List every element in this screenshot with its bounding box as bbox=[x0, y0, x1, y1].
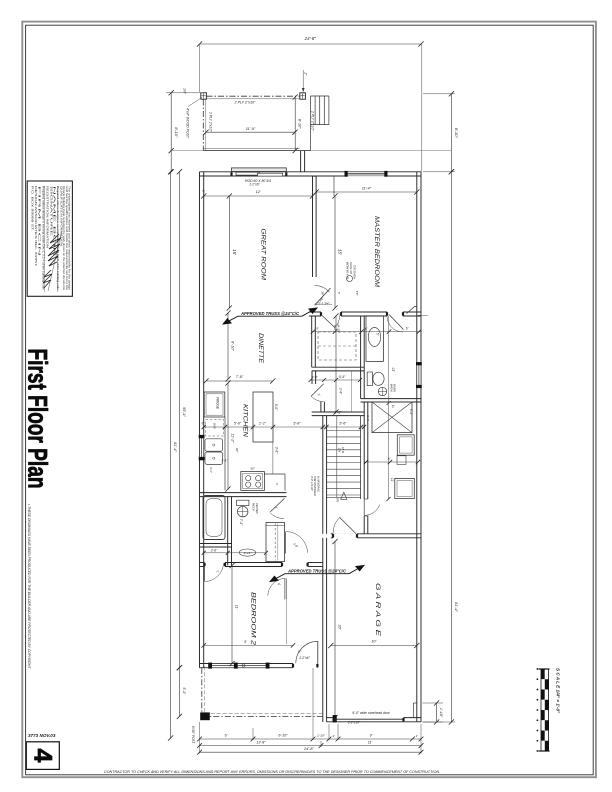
svg-text:The undersigned has reviewed a: The undersigned has reviewed and takes r… bbox=[68, 186, 71, 291]
svg-text:SLDG XO: SLDG XO bbox=[349, 262, 353, 275]
svg-text:C/W STRINGER: C/W STRINGER bbox=[313, 476, 317, 496]
svg-text:5'-6": 5'-6" bbox=[339, 422, 347, 426]
svg-text:P.O. BOX 99999 ST.: P.O. BOX 99999 ST. bbox=[31, 186, 33, 232]
svg-text:11'-4": 11'-4" bbox=[362, 186, 372, 190]
svg-text:2-2"x10": 2-2"x10" bbox=[347, 720, 361, 724]
svg-text:3'-1": 3'-1" bbox=[209, 467, 213, 474]
svg-text:3'-4": 3'-4" bbox=[338, 388, 342, 395]
svg-text:BEDROOM 2: BEDROOM 2 bbox=[250, 592, 257, 645]
svg-text:61'-4": 61'-4" bbox=[454, 602, 458, 612]
svg-text:8'-10": 8'-10" bbox=[174, 127, 179, 138]
svg-text:4: 4 bbox=[29, 749, 57, 763]
svg-text:9'-0" wide overhead door: 9'-0" wide overhead door bbox=[352, 711, 390, 715]
svg-text:24'-8": 24'-8" bbox=[304, 36, 317, 41]
svg-text:3'-0" x 6'-10": 3'-0" x 6'-10" bbox=[310, 476, 314, 492]
svg-text:2 PLY 2"x10": 2 PLY 2"x10" bbox=[311, 110, 315, 131]
svg-text:5'-6": 5'-6" bbox=[234, 422, 242, 426]
svg-text:C/R 3'HIGH: C/R 3'HIGH bbox=[353, 265, 357, 279]
svg-text:FRIDGE: FRIDGE bbox=[216, 397, 220, 410]
svg-text:1'-10": 1'-10" bbox=[439, 708, 443, 718]
svg-text:GREAT ROOM: GREAT ROOM bbox=[260, 229, 267, 281]
svg-text:6': 6' bbox=[406, 327, 409, 331]
svg-text:APPROVED TRUSS @24"C/C: APPROVED TRUSS @24"C/C bbox=[287, 569, 347, 574]
svg-text:VENTED: VENTED bbox=[255, 503, 259, 514]
svg-text:9': 9' bbox=[370, 734, 373, 738]
svg-text:2 PLY 2"x10": 2 PLY 2"x10" bbox=[209, 111, 213, 132]
svg-text:Required unless design is exem: Required unless design is exempt under D… bbox=[56, 186, 59, 291]
svg-text:24'-8": 24'-8" bbox=[303, 747, 314, 751]
svg-text:x8'-10": x8'-10" bbox=[337, 322, 341, 333]
svg-text:First Floor Plan: First Floor Plan bbox=[23, 349, 53, 489]
svg-text:WDW 60 X 48: WDW 60 X 48 bbox=[346, 262, 350, 280]
svg-text:CONTRACTOR TO CHECK AND VERIFY: CONTRACTOR TO CHECK AND VERIFY ALL DIMEN… bbox=[104, 770, 440, 774]
svg-text:2-2"x6": 2-2"x6" bbox=[248, 183, 260, 187]
svg-text:8'-10": 8'-10" bbox=[454, 128, 459, 139]
svg-text:• THESE DRAWINGS HAVE BEEN: • THESE DRAWINGS HAVE BEEN PRODUCED FOR … bbox=[27, 504, 31, 669]
svg-text:11': 11' bbox=[368, 740, 373, 744]
svg-text:S C A L E 1/4" = 1'-0": S C A L E 1/4" = 1'-0" bbox=[556, 668, 561, 714]
svg-text:20': 20' bbox=[337, 624, 341, 630]
svg-text:5': 5' bbox=[201, 190, 205, 193]
svg-text:Required unless design is exem: Required unless design is exempt under D… bbox=[41, 186, 44, 291]
svg-text:FIRM BCIN: FIRM BCIN bbox=[37, 186, 39, 258]
svg-text:16 R: 16 R bbox=[341, 447, 345, 454]
svg-text:11'-2": 11'-2" bbox=[230, 433, 234, 443]
svg-text:3773 NOV.03: 3773 NOV.03 bbox=[28, 733, 56, 738]
svg-text:2'-6": 2'-6" bbox=[210, 548, 218, 552]
svg-text:13': 13' bbox=[391, 367, 395, 372]
svg-text:55'-4": 55'-4" bbox=[182, 407, 186, 417]
svg-text:1'-4": 1'-4" bbox=[312, 375, 319, 379]
svg-text:10': 10' bbox=[371, 640, 376, 644]
svg-text:APPROVED TRUSS @24"C/C: APPROVED TRUSS @24"C/C bbox=[240, 311, 300, 316]
svg-text:2": 2" bbox=[304, 71, 308, 76]
svg-text:5'-1": 5'-1" bbox=[222, 459, 229, 463]
svg-text:6'/16" POST: 6'/16" POST bbox=[191, 726, 195, 745]
svg-text:3'-6": 3'-6" bbox=[274, 447, 278, 454]
svg-text:4"x4" WOOD POST: 4"x4" WOOD POST bbox=[186, 108, 190, 139]
svg-text:61'-4": 61'-4" bbox=[173, 442, 177, 452]
svg-text:15': 15' bbox=[232, 249, 237, 255]
svg-text:& HANDRAIL: & HANDRAIL bbox=[317, 476, 321, 493]
svg-text:3'-6": 3'-6" bbox=[334, 410, 342, 414]
svg-text:6': 6' bbox=[225, 734, 228, 738]
svg-text:8'-10": 8'-10" bbox=[230, 341, 234, 351]
svg-text:3'-1": 3'-1" bbox=[409, 409, 413, 416]
svg-text:15': 15' bbox=[338, 249, 343, 255]
svg-text:6': 6' bbox=[365, 327, 368, 331]
svg-text:11': 11' bbox=[234, 605, 238, 610]
svg-text:1'-1 3/4": 1'-1 3/4" bbox=[319, 302, 331, 306]
svg-text:5': 5' bbox=[392, 405, 395, 409]
svg-text:11'-9": 11'-9" bbox=[246, 126, 256, 131]
svg-text:9': 9' bbox=[244, 640, 247, 644]
svg-text:G A R A G E: G A R A G E bbox=[374, 583, 381, 637]
svg-text:KITCHEN: KITCHEN bbox=[242, 404, 249, 437]
svg-text:11': 11' bbox=[390, 478, 394, 483]
svg-text:8'-10": 8'-10" bbox=[298, 119, 302, 129]
svg-text:2'-2": 2'-2" bbox=[258, 422, 267, 426]
svg-text:SIGNATURE: SIGNATURE bbox=[49, 186, 52, 238]
svg-text:5'-8": 5'-8" bbox=[293, 422, 301, 426]
svg-text:5'-6": 5'-6" bbox=[339, 375, 346, 379]
svg-text:and has the qualifications and: and has the qualifications and meets the… bbox=[65, 186, 68, 291]
svg-text:BASIN: BASIN bbox=[393, 384, 397, 392]
svg-text:2½": 2½" bbox=[183, 87, 187, 94]
svg-text:MASTER BEDROOM: MASTER BEDROOM bbox=[373, 216, 380, 287]
svg-text:Ontario Building Code to desig: Ontario Building Code to design the work… bbox=[62, 186, 65, 291]
svg-text:1'-10": 1'-10" bbox=[317, 734, 326, 738]
svg-text:5'-4": 5'-4" bbox=[182, 687, 186, 695]
svg-text:2 PLY 2"x10": 2 PLY 2"x10" bbox=[234, 101, 256, 105]
svg-text:5'-0": 5'-0" bbox=[333, 325, 337, 332]
svg-text:5'-0": 5'-0" bbox=[274, 404, 278, 411]
svg-text:QUALIFICATION INFORMATION: QUALIFICATION INFORMATION bbox=[59, 186, 62, 247]
svg-text:DINETTE: DINETTE bbox=[257, 333, 264, 363]
svg-text:7'-8": 7'-8" bbox=[236, 375, 244, 379]
svg-text:3'-4": 3'-4" bbox=[366, 415, 370, 422]
svg-text:12': 12' bbox=[256, 190, 261, 194]
svg-text:7'-4": 7'-4" bbox=[239, 519, 243, 526]
svg-text:2-2"x6": 2-2"x6" bbox=[298, 656, 310, 660]
svg-text:REGISTRATION INFORMATION: REGISTRATION INFORMATION bbox=[45, 186, 48, 249]
svg-text:6'-10": 6'-10" bbox=[278, 734, 288, 738]
svg-text:DN: DN bbox=[335, 498, 339, 502]
svg-text:13'-8": 13'-8" bbox=[256, 740, 266, 744]
svg-text:DESIGN ASSOCIATES INC.: DESIGN ASSOCIATES INC. 31557 bbox=[34, 186, 37, 268]
svg-text:6': 6' bbox=[388, 457, 391, 461]
svg-text:5': 5' bbox=[375, 333, 379, 336]
